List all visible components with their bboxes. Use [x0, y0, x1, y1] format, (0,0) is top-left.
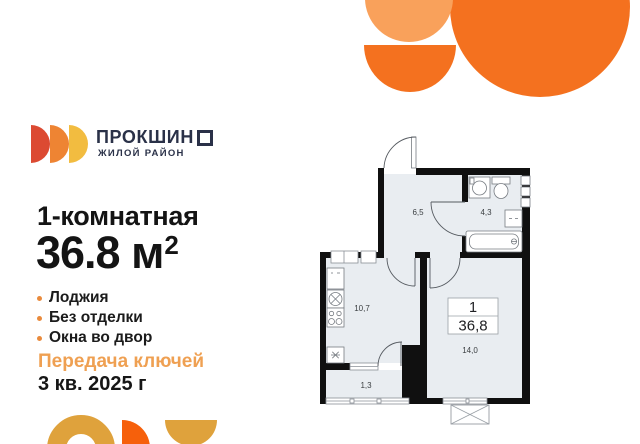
shelf-icon	[521, 187, 530, 196]
bathroom-area-label: 4,3	[480, 208, 492, 217]
total-area-label: 36,8	[458, 318, 487, 335]
shelf-icon	[521, 198, 530, 207]
kitchen-fixtures	[327, 268, 344, 363]
entrance-door-leaf	[412, 137, 417, 168]
living-area-label: 14,0	[462, 346, 478, 355]
shelf-icon	[521, 176, 530, 185]
apartment-summary-box: 1 36,8	[448, 298, 498, 335]
rooms-count-label: 1	[469, 300, 477, 316]
hallway-area-label: 6,5	[412, 208, 424, 217]
toilet-icon	[492, 177, 510, 184]
kitchen-area-label: 10,7	[354, 304, 370, 313]
listing-card: ПРОКШИН ЖИЛОЙ РАЙОН 1-комнатная 36.8 м2 …	[0, 0, 640, 444]
washing-machine-icon	[505, 210, 522, 227]
floor-plan: 6,5 4,3 10,7 14,0 1,3 1 36,8	[0, 0, 640, 444]
loggia-area-label: 1,3	[360, 381, 372, 390]
counter-icon	[327, 268, 344, 289]
